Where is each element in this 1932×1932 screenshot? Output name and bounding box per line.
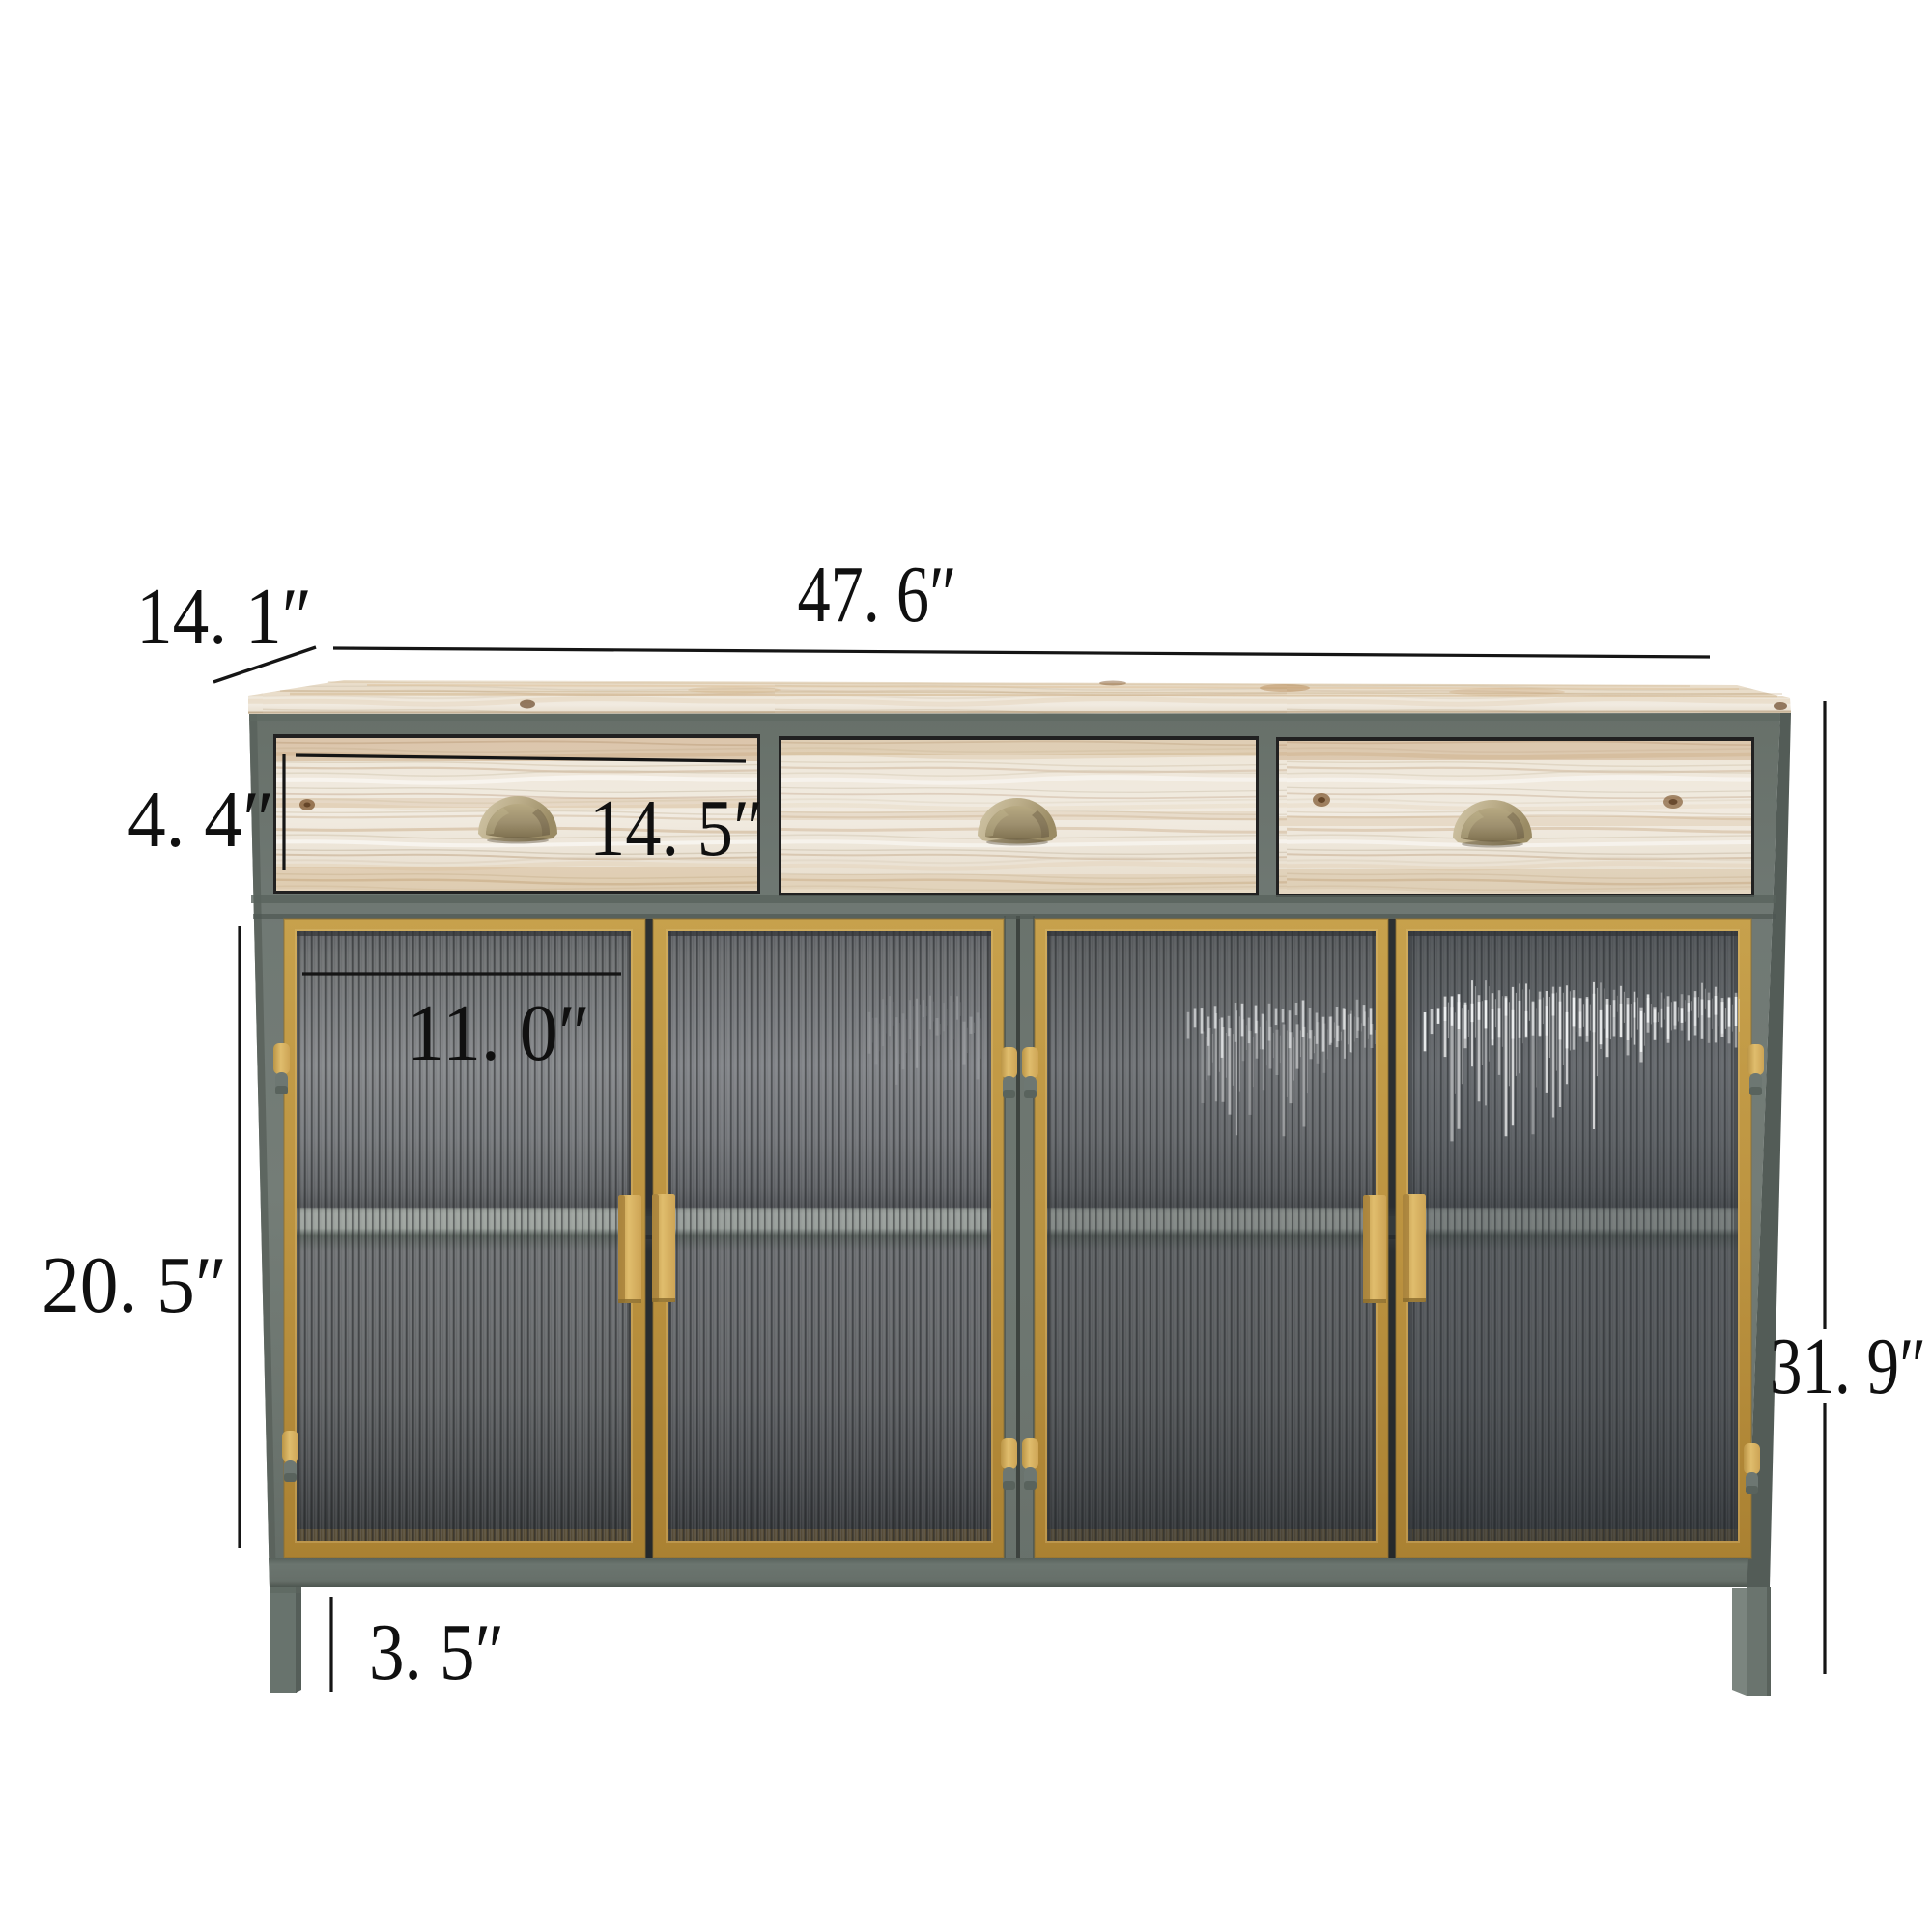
- svg-text:3. 5″: 3. 5″: [369, 1607, 504, 1697]
- svg-text:31. 9″: 31. 9″: [1770, 1321, 1926, 1411]
- svg-text:14. 5″: 14. 5″: [589, 783, 763, 873]
- svg-text:4. 4″: 4. 4″: [128, 775, 274, 865]
- svg-text:14. 1″: 14. 1″: [136, 572, 312, 662]
- svg-text:47. 6″: 47. 6″: [798, 550, 957, 639]
- svg-text:20. 5″: 20. 5″: [42, 1240, 227, 1330]
- svg-text:11. 0″: 11. 0″: [407, 988, 590, 1078]
